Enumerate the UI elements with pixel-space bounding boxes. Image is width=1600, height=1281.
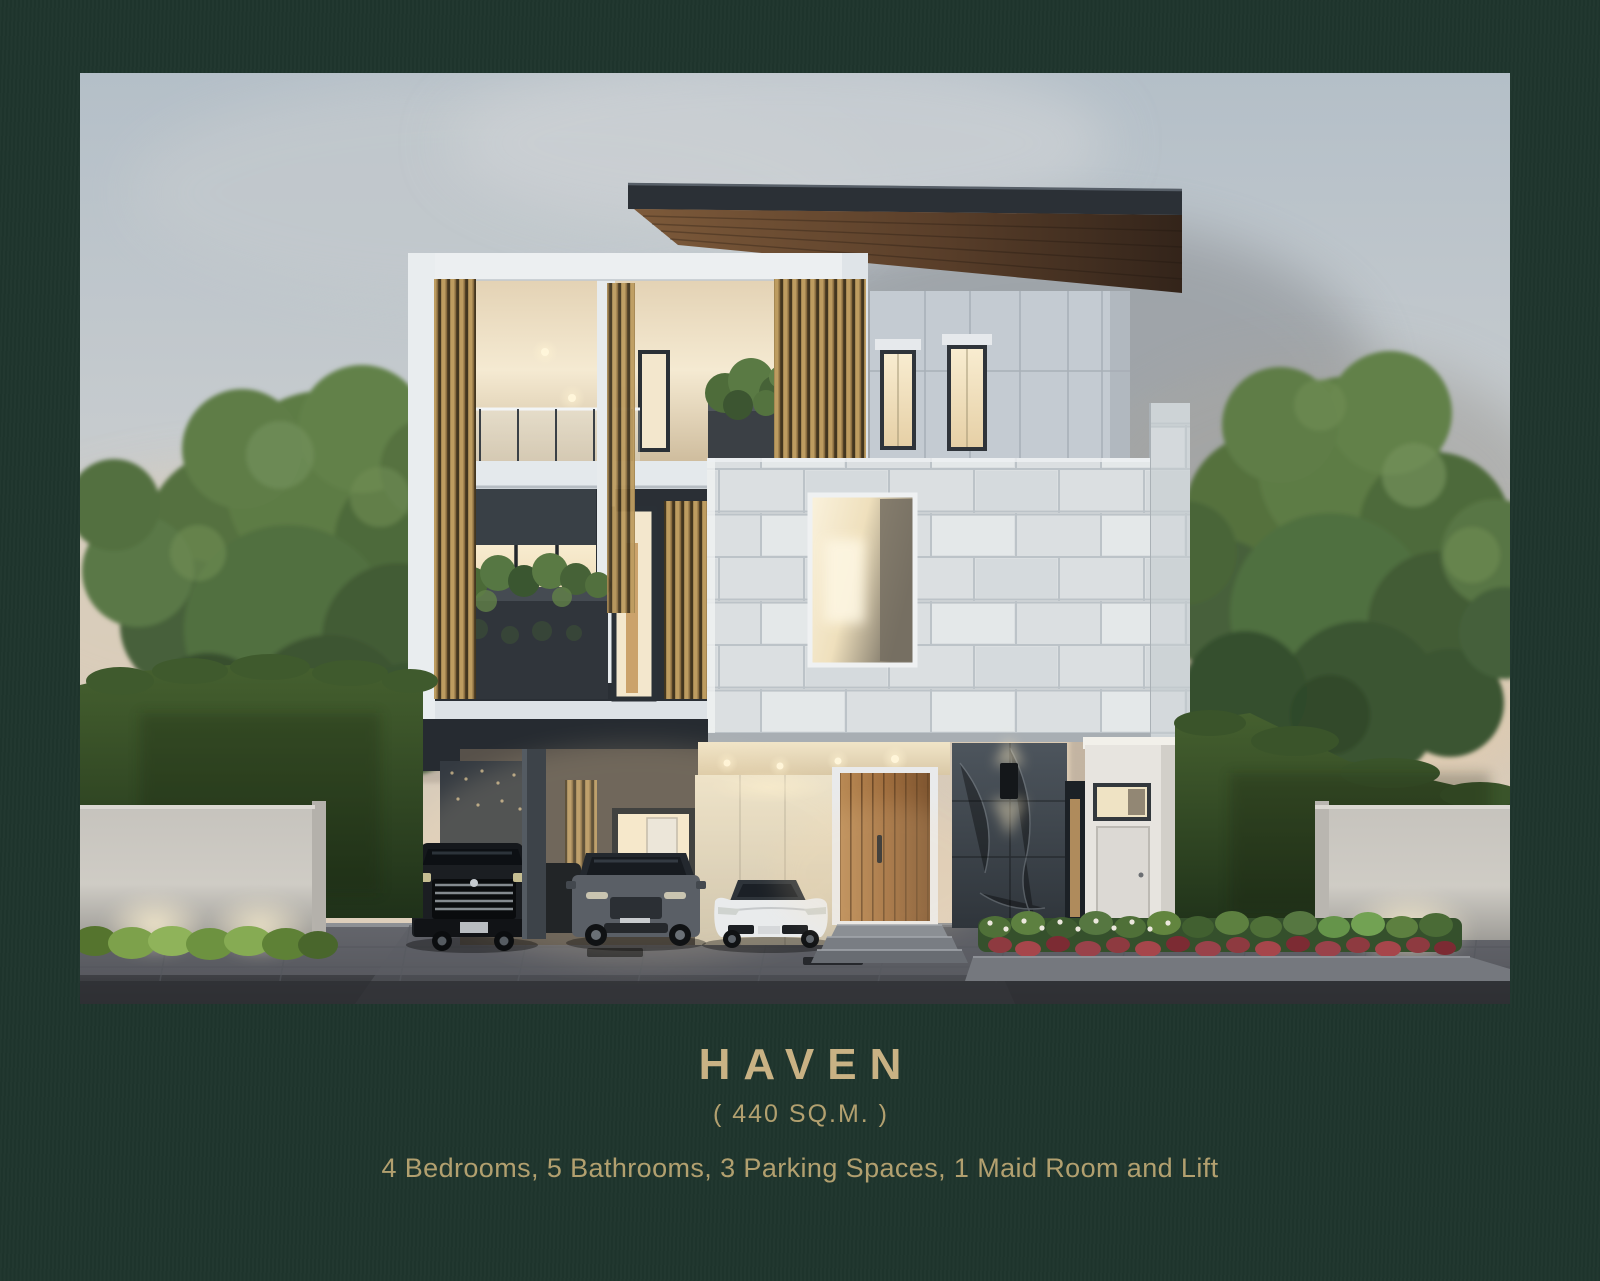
slot-window bbox=[875, 339, 921, 450]
entrance-steps bbox=[811, 925, 968, 963]
stone-notch-opening bbox=[810, 495, 915, 665]
upper-grey-box bbox=[870, 291, 1130, 465]
lit-shrub-row bbox=[80, 926, 338, 960]
house-rendering-photo bbox=[80, 73, 1510, 1004]
villa-illustration bbox=[80, 73, 1510, 1004]
project-area: ( 440 SQ.M. ) bbox=[0, 1100, 1600, 1129]
brass-louvres bbox=[774, 279, 866, 461]
slot-window bbox=[942, 334, 992, 451]
ivy-planter bbox=[456, 553, 611, 699]
granite-curb bbox=[965, 957, 1510, 981]
black-van bbox=[406, 843, 538, 953]
project-name: HAVEN bbox=[0, 1040, 1600, 1090]
service-entry bbox=[1083, 737, 1179, 928]
marble-feature-wall bbox=[952, 737, 1067, 928]
project-features: 4 Bedrooms, 5 Bathrooms, 3 Parking Space… bbox=[0, 1153, 1600, 1184]
boundary-wall-left bbox=[80, 801, 338, 961]
side-glass-panel bbox=[1065, 781, 1085, 928]
villa bbox=[406, 183, 1190, 963]
grey-suv bbox=[566, 853, 706, 951]
caption-block: HAVEN ( 440 SQ.M. ) 4 Bedrooms, 5 Bathro… bbox=[0, 1004, 1600, 1184]
brass-louvres bbox=[607, 283, 635, 613]
brass-louvres bbox=[434, 279, 476, 699]
brochure-page: { "page": { "background_color": "#1f352d… bbox=[0, 0, 1600, 1281]
balcony-window bbox=[640, 352, 668, 450]
window-header-panel bbox=[476, 489, 596, 545]
flower-bed bbox=[965, 911, 1510, 981]
